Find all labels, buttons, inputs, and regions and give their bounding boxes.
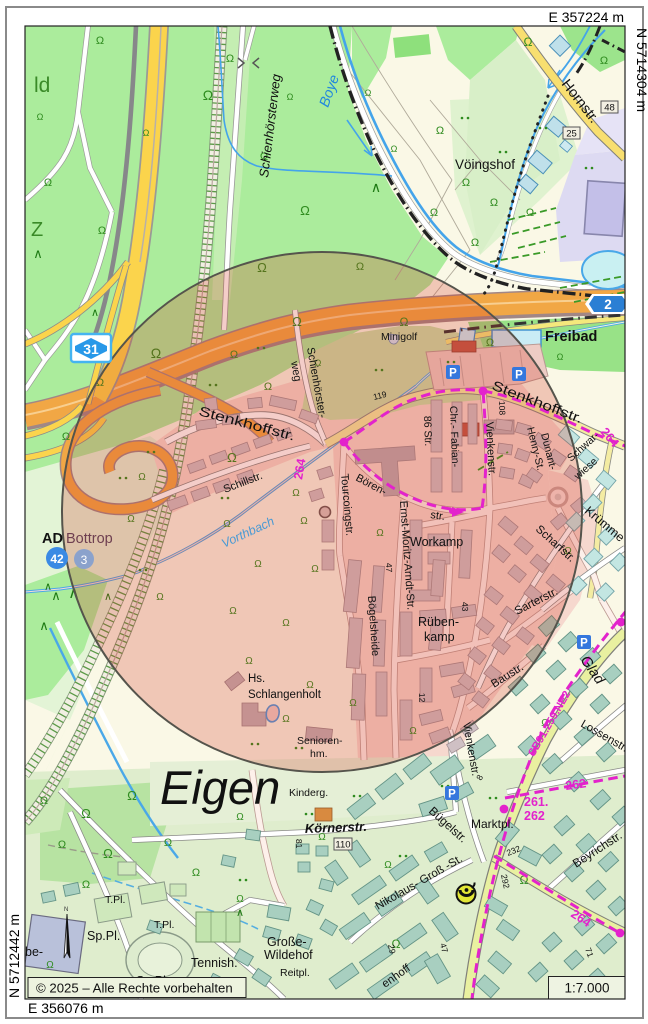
svg-text:∧: ∧ <box>33 246 43 261</box>
svg-text:Große-: Große- <box>267 935 307 949</box>
svg-text:Ω: Ω <box>127 788 137 803</box>
svg-text:261.: 261. <box>524 795 548 809</box>
svg-text:∧: ∧ <box>44 581 52 593</box>
svg-text:∧: ∧ <box>39 618 49 633</box>
svg-text:Ω: Ω <box>103 846 113 861</box>
svg-text:2: 2 <box>604 297 612 312</box>
svg-text:kamp: kamp <box>424 630 455 644</box>
svg-text:Ω: Ω <box>632 231 640 243</box>
svg-text:E 356076 m: E 356076 m <box>28 1000 104 1016</box>
svg-text:Ω: Ω <box>37 112 44 122</box>
svg-text:hm.: hm. <box>310 748 328 760</box>
svg-text:R: R <box>413 998 427 1013</box>
svg-text:Ω: Ω <box>81 806 91 821</box>
svg-text:Ω: Ω <box>384 860 392 871</box>
svg-text:Chr.- Fabian-: Chr.- Fabian- <box>447 406 461 468</box>
svg-text:Ω: Ω <box>391 144 398 154</box>
svg-text:P: P <box>449 368 457 380</box>
svg-text:108: 108 <box>497 401 507 416</box>
svg-text:Ω: Ω <box>192 867 200 879</box>
svg-text:Ω: Ω <box>430 207 438 219</box>
svg-text:str.: str. <box>430 509 446 523</box>
svg-text:48: 48 <box>604 103 615 114</box>
svg-text:43: 43 <box>460 602 470 612</box>
svg-text:Ω: Ω <box>96 35 104 47</box>
svg-text:P: P <box>448 789 456 801</box>
svg-text:N 5714304 m: N 5714304 m <box>634 28 648 112</box>
svg-text:Marktpl.: Marktpl. <box>471 817 514 831</box>
svg-text:Hs.: Hs. <box>248 673 265 685</box>
svg-text:1:7.000: 1:7.000 <box>564 981 609 996</box>
svg-text:Ω: Ω <box>226 53 234 65</box>
svg-text:Ω: Ω <box>490 197 498 209</box>
svg-text:Körnerstr.: Körnerstr. <box>305 819 368 836</box>
svg-text:Ω: Ω <box>143 128 150 138</box>
svg-text:N: N <box>64 907 68 913</box>
svg-text:Ω: Ω <box>44 177 52 189</box>
svg-text:86 Str.: 86 Str. <box>421 416 434 447</box>
svg-text:P: P <box>580 638 588 650</box>
svg-text:Ω: Ω <box>236 894 244 905</box>
svg-text:Ω: Ω <box>600 55 608 67</box>
svg-text:47: 47 <box>384 563 394 573</box>
svg-text:262: 262 <box>524 809 545 823</box>
svg-text:Reitpl.: Reitpl. <box>280 967 310 979</box>
svg-text:N 5712442 m: N 5712442 m <box>6 914 22 998</box>
svg-text:P: P <box>515 370 523 382</box>
svg-text:Ω: Ω <box>365 88 372 98</box>
svg-text:Ω: Ω <box>46 960 54 971</box>
svg-text:Z: Z <box>31 219 43 241</box>
svg-text:Ω: Ω <box>557 352 564 362</box>
svg-text:Ω: Ω <box>62 431 70 443</box>
svg-text:Vöingshof: Vöingshof <box>455 157 515 172</box>
svg-text:∧: ∧ <box>91 307 99 319</box>
svg-text:T.Pl.: T.Pl. <box>105 894 125 906</box>
svg-text:Ω: Ω <box>98 225 106 237</box>
svg-text:25: 25 <box>566 129 577 140</box>
svg-text:ld: ld <box>34 74 50 97</box>
svg-text:Eigen: Eigen <box>160 761 280 814</box>
svg-text:Ω: Ω <box>524 35 533 49</box>
svg-text:Wildehof: Wildehof <box>264 948 313 962</box>
svg-text:© 2025 – Alle Rechte vorbehalt: © 2025 – Alle Rechte vorbehalten <box>36 981 233 996</box>
svg-text:Minigolf: Minigolf <box>381 331 417 343</box>
svg-text:∧: ∧ <box>236 907 244 919</box>
svg-text:Kinderg.: Kinderg. <box>289 787 328 799</box>
svg-text:T.Pl.: T.Pl. <box>154 919 174 931</box>
svg-text:Ω: Ω <box>40 795 48 807</box>
svg-text:AD: AD <box>42 531 63 547</box>
svg-text:Sp.Pl.: Sp.Pl. <box>87 929 120 943</box>
svg-text:Ω: Ω <box>164 837 172 849</box>
svg-text:E 357224 m: E 357224 m <box>549 9 625 25</box>
svg-text:3: 3 <box>81 553 88 567</box>
svg-text:Ω: Ω <box>287 92 294 102</box>
svg-text:∧: ∧ <box>51 588 61 603</box>
svg-text:Schlangenholt: Schlangenholt <box>248 689 322 701</box>
svg-text:Tennish.: Tennish. <box>191 956 238 970</box>
svg-text:Ω: Ω <box>300 203 310 218</box>
svg-text:Rüben-: Rüben- <box>418 615 459 629</box>
svg-text:Ω: Ω <box>471 237 479 249</box>
svg-text:Ω: Ω <box>58 839 66 851</box>
svg-text:Ω: Ω <box>526 207 534 219</box>
svg-text:Freibad: Freibad <box>545 329 597 345</box>
svg-text:Bottrop: Bottrop <box>66 531 113 547</box>
svg-text:∧: ∧ <box>371 179 381 195</box>
svg-text:Senioren-: Senioren- <box>297 735 343 747</box>
svg-text:Ω: Ω <box>632 181 640 193</box>
svg-text:31: 31 <box>83 341 99 357</box>
svg-text:Ω: Ω <box>436 125 444 137</box>
svg-text:be-: be- <box>25 945 43 959</box>
svg-text:42: 42 <box>50 552 64 566</box>
svg-text:262: 262 <box>564 776 587 793</box>
svg-text:Workamp: Workamp <box>410 535 463 549</box>
svg-text:Ω: Ω <box>82 879 90 891</box>
svg-text:Ω: Ω <box>462 177 470 189</box>
svg-text:81: 81 <box>294 839 304 849</box>
svg-text:Ω: Ω <box>203 87 213 103</box>
svg-text:110: 110 <box>335 840 350 851</box>
svg-text:12: 12 <box>417 693 427 703</box>
